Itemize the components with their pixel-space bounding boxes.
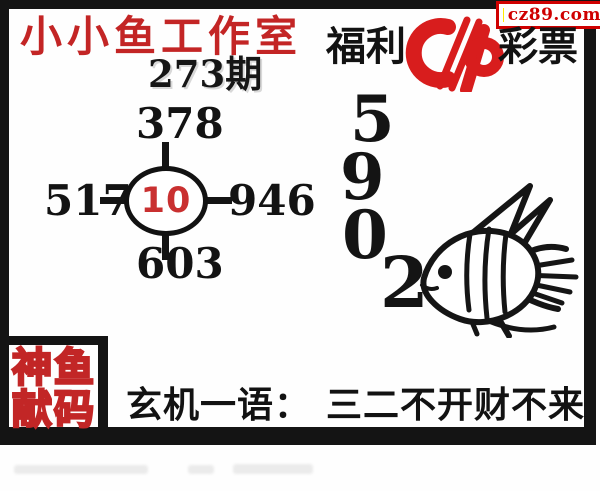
fish-eye [438,265,452,279]
diagram-center-value: 10 [141,184,192,219]
brand-suffix: 彩票 [498,27,578,67]
frame-left-border [0,0,9,445]
stamp-box-right-line [98,336,108,431]
code-stamp-line2: 献码 [12,390,96,430]
cp-lottery-logo-icon [398,14,504,92]
watermark-smudge [14,465,148,474]
lottery-tip-sheet: cz89.com 小小鱼工作室 273期 福利 彩票 378 517 946 6… [0,0,600,491]
diagram-number-top: 378 [136,103,224,145]
diagram-number-right: 946 [228,180,316,222]
diagram-tick-left [100,197,126,204]
brand-prefix: 福利 [326,27,406,67]
frame-right-border [584,2,596,445]
diagram-number-bottom: 603 [136,243,224,285]
watermark-smudge [188,465,214,474]
angelfish-icon [412,176,580,338]
hint-text: 三二不开财不来 [326,388,585,424]
diagram-tick-right [206,197,232,204]
code-stamp-line1: 神鱼 [12,348,96,388]
watermark-smudge [233,464,313,474]
issue-number: 273期 [148,56,262,93]
diagram-center-circle: 10 [124,166,208,236]
hint-bar: 玄机一语： 三二不开财不来 [126,388,585,424]
diagram-tick-top [162,142,169,168]
hint-label: 玄机一语： [126,388,311,424]
stamp-box-top-line [0,336,108,345]
site-badge-label: cz89.com [508,5,600,25]
diagram-tick-bottom [162,234,169,260]
